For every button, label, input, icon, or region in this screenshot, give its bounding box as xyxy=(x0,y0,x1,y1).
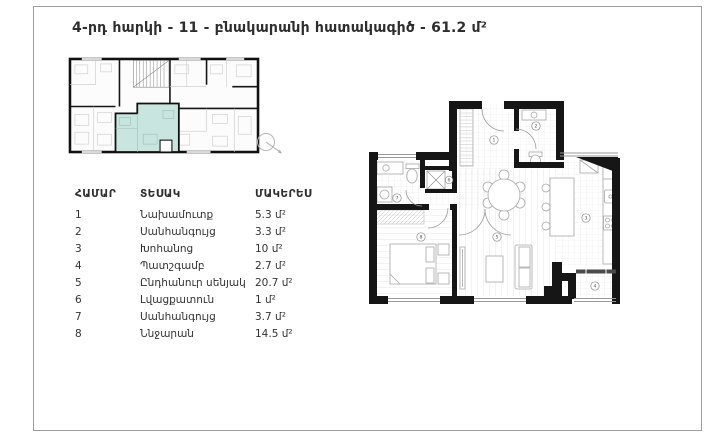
table-row: 3 Խոհանոց 10 մ² xyxy=(75,240,350,257)
room-marker-8: 8 xyxy=(417,233,425,241)
room-marker-1: 1 xyxy=(490,136,498,144)
room-number: 4 xyxy=(75,257,140,274)
svg-text:1: 1 xyxy=(493,138,496,144)
room-area: 2.7 մ² xyxy=(255,257,350,274)
page-title: 4-րդ հարկի - 11 - բնակարանի հատակագիծ - … xyxy=(72,20,487,36)
room-type: Նախամուտք xyxy=(140,206,255,223)
table-row: 5 Ընդհանուր սենյակ 20.7 մ² xyxy=(75,274,350,291)
room-area: 10 մ² xyxy=(255,240,350,257)
room-area: 20.7 մ² xyxy=(255,274,350,291)
room-marker-6: 6 xyxy=(445,176,453,184)
svg-text:8: 8 xyxy=(420,235,423,241)
header-area: ՄԱԿԵՐԵՍ xyxy=(255,188,350,206)
room-number: 7 xyxy=(75,308,140,325)
room-number: 6 xyxy=(75,291,140,308)
svg-text:7: 7 xyxy=(396,196,399,202)
svg-text:3: 3 xyxy=(585,216,588,222)
staircase xyxy=(133,60,169,87)
svg-text:5: 5 xyxy=(496,235,499,241)
room-marker-7: 7 xyxy=(393,194,401,202)
room-number: 1 xyxy=(75,206,140,223)
svg-text:4: 4 xyxy=(594,284,597,290)
room-marker-2: 2 xyxy=(532,122,540,130)
room-type: Սանհանգույց xyxy=(140,223,255,240)
room-area: 3.3 մ² xyxy=(255,223,350,240)
header-type: ՏԵՍԱԿ xyxy=(140,188,255,206)
room-number: 5 xyxy=(75,274,140,291)
floor-plan-page: 4-րդ հարկի - 11 - բնակարանի հատակագիծ - … xyxy=(0,0,710,440)
table-row: 4 Պատշգամբ 2.7 մ² xyxy=(75,257,350,274)
room-type: Ընդհանուր սենյակ xyxy=(140,274,255,291)
table-row: 1 Նախամուտք 5.3 մ² xyxy=(75,206,350,223)
mini-floor-plan xyxy=(68,57,260,154)
main-floor-plan: 1 2 3 4 5 6 7 8 xyxy=(364,96,626,321)
table-row: 6 Լվացքատուն 1 մ² xyxy=(75,291,350,308)
room-marker-4: 4 xyxy=(591,282,599,290)
room-marker-3: 3 xyxy=(582,214,590,222)
room-type: Լվացքատուն xyxy=(140,291,255,308)
room-type: Ննջարան xyxy=(140,325,255,342)
svg-text:6: 6 xyxy=(448,178,451,184)
room-area: 3.7 մ² xyxy=(255,308,350,325)
room-legend-table: ՀԱՄԱՐ ՏԵՍԱԿ ՄԱԿԵՐԵՍ 1 Նախամուտք 5.3 մ² 2… xyxy=(75,188,350,342)
room-area: 1 մ² xyxy=(255,291,350,308)
room-number: 2 xyxy=(75,223,140,240)
table-row: 8 Ննջարան 14.5 մ² xyxy=(75,325,350,342)
room-marker-5: 5 xyxy=(493,233,501,241)
header-number: ՀԱՄԱՐ xyxy=(75,188,140,206)
table-row: 2 Սանհանգույց 3.3 մ² xyxy=(75,223,350,240)
room-type: Պատշգամբ xyxy=(140,257,255,274)
room-area: 14.5 մ² xyxy=(255,325,350,342)
room-type: Խոհանոց xyxy=(140,240,255,257)
table-row: 7 Սանհանգույց 3.7 մ² xyxy=(75,308,350,325)
legend-header-row: ՀԱՄԱՐ ՏԵՍԱԿ ՄԱԿԵՐԵՍ xyxy=(75,188,350,206)
room-area: 5.3 մ² xyxy=(255,206,350,223)
svg-text:2: 2 xyxy=(535,124,538,130)
room-number: 3 xyxy=(75,240,140,257)
room-type: Սանհանգույց xyxy=(140,308,255,325)
room-number: 8 xyxy=(75,325,140,342)
compass-icon xyxy=(253,131,289,161)
